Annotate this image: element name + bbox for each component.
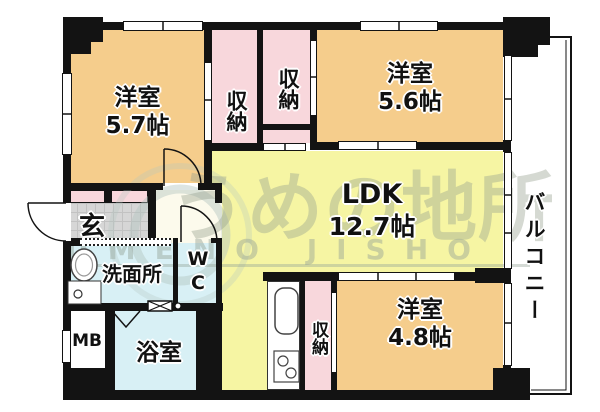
meter-box-label: MB (68, 331, 106, 351)
room-size: 4.8帖 (388, 325, 452, 351)
room-name: LDK (342, 179, 403, 210)
room-bottom-right-label: 洋室 4.8帖 (337, 296, 503, 352)
floorplan: うめの地所 UMENO JISHO (0, 0, 600, 412)
closet-top-left-label: 収納 (219, 66, 251, 156)
closet-bottom-label: 収納 (305, 298, 331, 378)
room-size: 5.7帖 (106, 113, 170, 139)
toilet-door-arc (181, 206, 217, 242)
closet-top-right-label: 収納 (271, 44, 303, 134)
room-top-right-label: 洋室 5.6帖 (317, 60, 503, 116)
room-name: 洋室 (397, 297, 443, 323)
ldk-label: LDK 12.7帖 (272, 179, 472, 243)
room-name: 洋室 (115, 85, 161, 111)
toilet-w: W (188, 248, 209, 270)
kitchen-sink-icon (275, 288, 298, 334)
room-top-left-label: 洋室 5.7帖 (71, 84, 204, 140)
washroom-label: 洗面所 (92, 258, 172, 287)
entrance-door-arc (28, 203, 66, 241)
room-tl-door-arc (164, 149, 201, 186)
bathroom-label: 浴室 (121, 333, 197, 367)
balcony-label: バルコニー (519, 148, 549, 368)
entrance-label: 玄 (72, 206, 112, 243)
toilet-label: W C (183, 247, 213, 295)
toilet-c: C (191, 272, 205, 294)
bath-entry-hatch-icon (148, 301, 181, 311)
kitchen-stove-icon (274, 351, 299, 382)
bathroom-folding-door-icon (112, 311, 140, 327)
room-name: 洋室 (387, 61, 433, 87)
room-size: 12.7帖 (329, 212, 416, 241)
room-size: 5.6帖 (378, 89, 442, 115)
